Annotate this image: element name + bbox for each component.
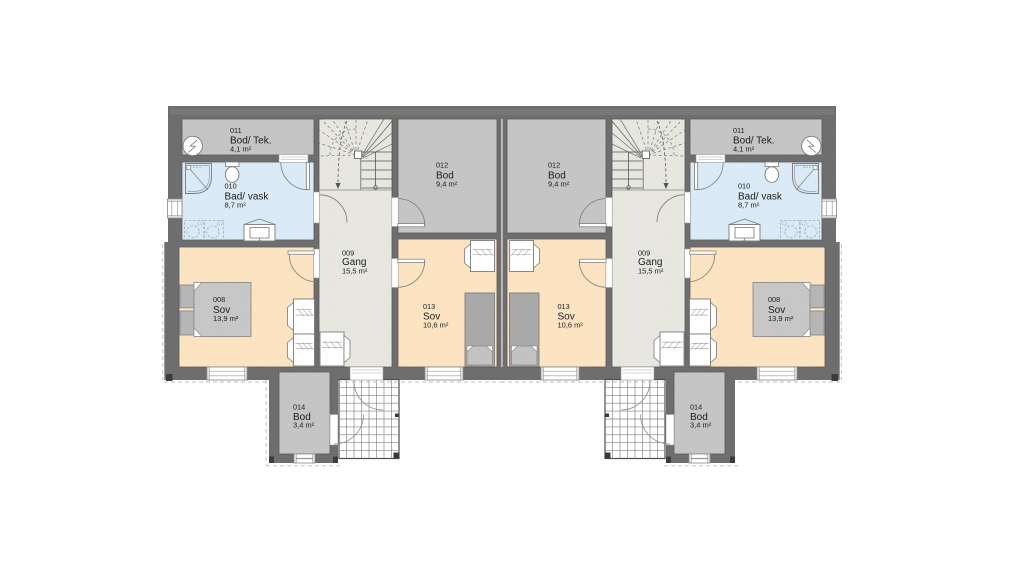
svg-text:010: 010 [225, 182, 237, 191]
svg-text:13,9 m²: 13,9 m² [213, 314, 239, 323]
svg-text:10,6 m²: 10,6 m² [558, 321, 584, 330]
svg-text:13,9 m²: 13,9 m² [768, 314, 794, 323]
svg-text:013: 013 [558, 302, 570, 311]
svg-text:013: 013 [423, 302, 435, 311]
svg-text:008: 008 [213, 295, 225, 304]
svg-text:9,4 m²: 9,4 m² [436, 180, 458, 189]
svg-text:10,6 m²: 10,6 m² [423, 321, 449, 330]
svg-text:15,5 m²: 15,5 m² [342, 267, 368, 276]
svg-text:9,4 m²: 9,4 m² [548, 180, 570, 189]
svg-text:010: 010 [738, 182, 750, 191]
svg-text:15,5 m²: 15,5 m² [638, 267, 664, 276]
svg-text:4,1 m²: 4,1 m² [230, 145, 252, 154]
svg-text:4,1 m²: 4,1 m² [733, 145, 755, 154]
svg-text:3,4 m²: 3,4 m² [293, 421, 315, 430]
svg-text:011: 011 [230, 126, 242, 135]
svg-text:3,4 m²: 3,4 m² [690, 421, 712, 430]
svg-text:014: 014 [690, 403, 702, 412]
svg-text:012: 012 [548, 161, 560, 170]
svg-text:008: 008 [768, 295, 780, 304]
svg-text:8,7 m²: 8,7 m² [225, 201, 247, 210]
svg-text:011: 011 [733, 126, 745, 135]
svg-text:8,7 m²: 8,7 m² [738, 201, 760, 210]
svg-text:014: 014 [293, 403, 305, 412]
svg-text:012: 012 [436, 161, 448, 170]
